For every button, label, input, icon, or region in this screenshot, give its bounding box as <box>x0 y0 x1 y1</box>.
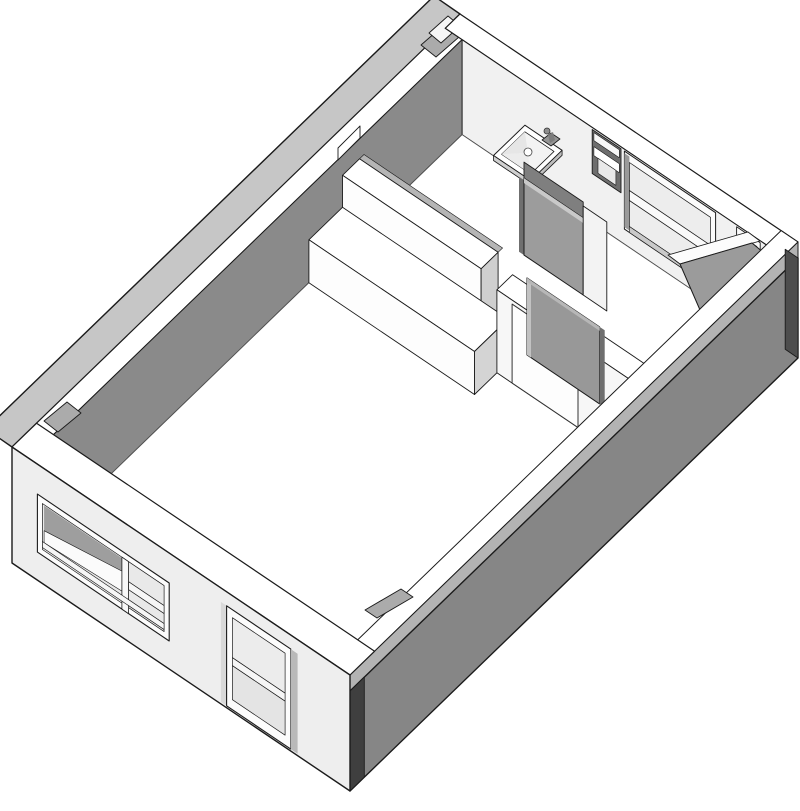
entry-door-leaf-right-edge <box>600 327 605 407</box>
se-wall-bottom-end-strip <box>350 677 364 791</box>
sink-drain <box>524 148 532 156</box>
tall-window-left-reveal <box>221 602 227 706</box>
bath-door-pier <box>583 206 607 311</box>
se-wall-right-end-strip <box>785 249 798 358</box>
screenshot-root <box>0 0 800 811</box>
bedroom-window-left-jamb <box>624 153 629 230</box>
faucet-knob <box>544 128 550 134</box>
axonometric-floorplan-view <box>0 0 800 811</box>
entry-door-leaf-left-edge <box>527 278 531 358</box>
tall-window-right-reveal <box>291 649 298 754</box>
bath-door-reveal <box>519 177 524 255</box>
